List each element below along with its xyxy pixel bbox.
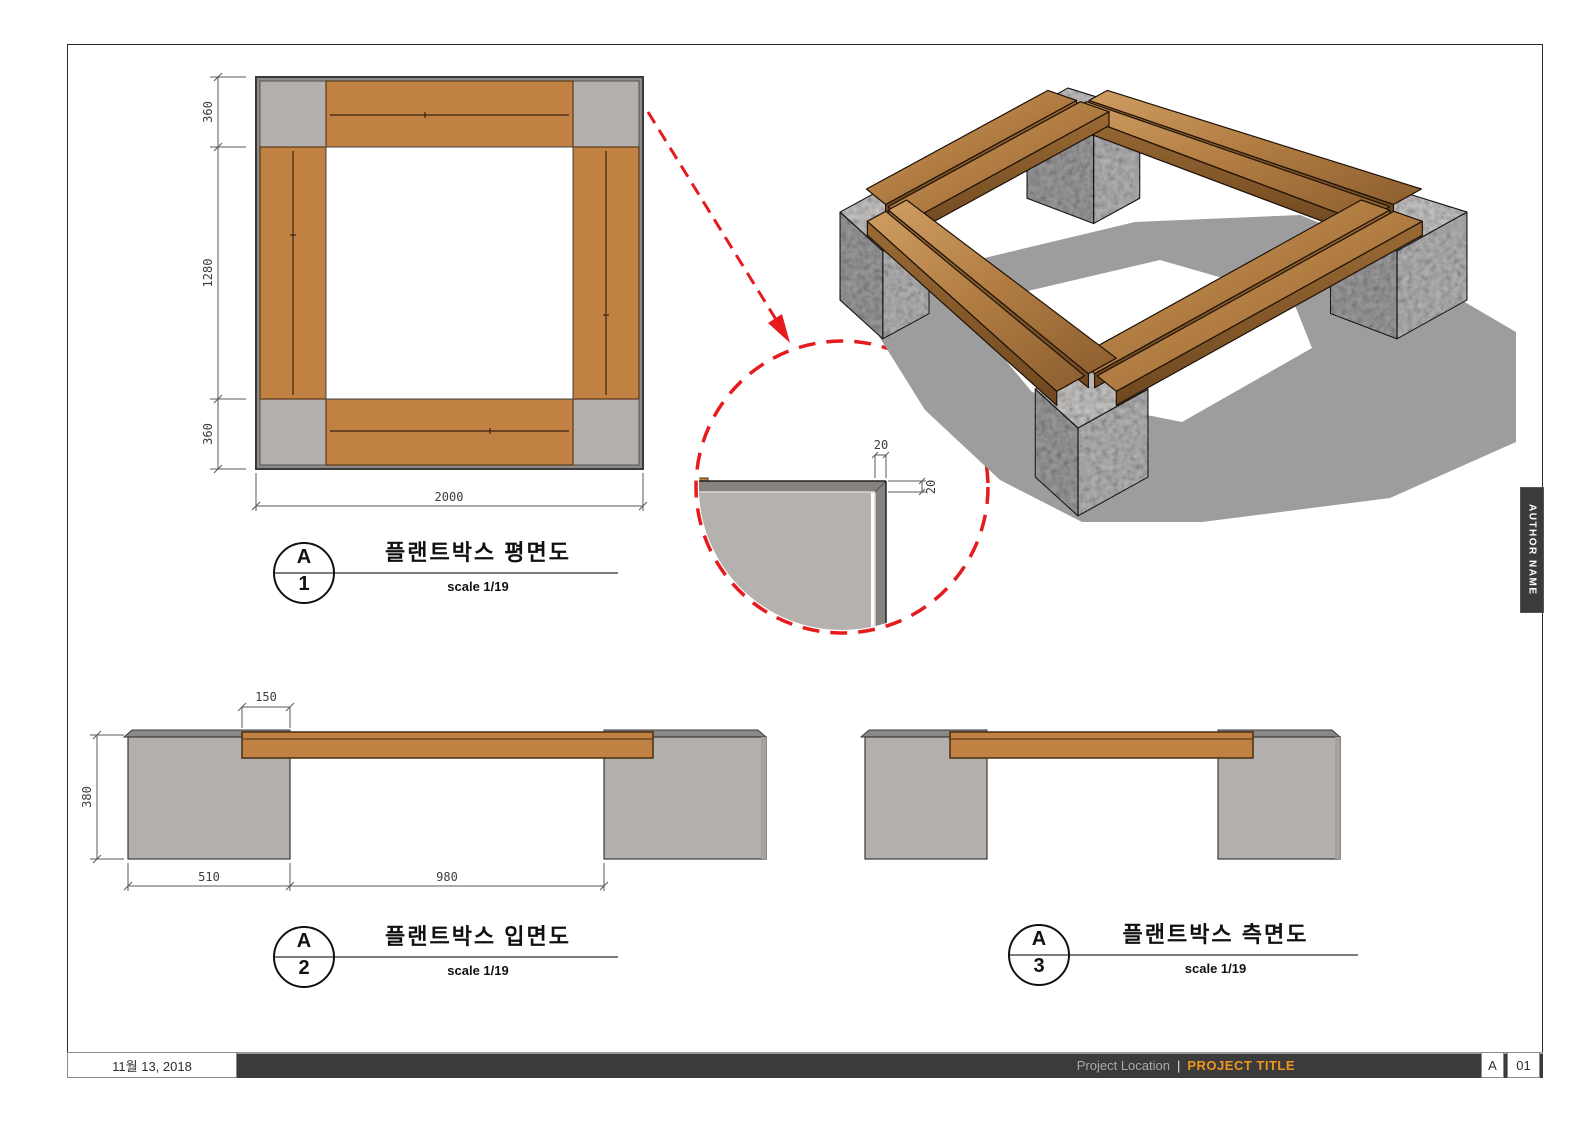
elevation-title-block: A 2 플랜트박스 입면도 scale 1/19 <box>273 917 618 1001</box>
elevation-dim-380: 380 <box>80 786 94 808</box>
elevation-wood-plank <box>242 732 653 758</box>
elevation-dim-510: 510 <box>198 870 220 884</box>
ref-number: 1 <box>275 573 333 599</box>
elevation-geometry <box>124 730 766 859</box>
side-view-drawing <box>850 670 1370 900</box>
elevation-right-block-bevel <box>761 737 766 859</box>
elevation-dim-980: 980 <box>436 870 458 884</box>
side-title-block: A 3 플랜트박스 측면도 scale 1/19 <box>1008 915 1358 999</box>
date-box: 11월 13, 2018 <box>67 1052 237 1078</box>
ref-number: 2 <box>275 957 333 983</box>
ref-number: 3 <box>1010 955 1068 981</box>
ref-letter: A <box>275 930 333 956</box>
ref-letter: A <box>275 546 333 572</box>
sheet-number-box: 01 <box>1507 1052 1540 1078</box>
isometric-render <box>830 70 1530 590</box>
side-wood-plank <box>950 732 1253 758</box>
elevation-scale: scale 1/19 <box>343 963 613 978</box>
author-name: AUTHOR NAME <box>1527 504 1538 596</box>
side-title: 플랜트박스 측면도 <box>1078 915 1353 954</box>
project-separator: | <box>1177 1058 1180 1073</box>
side-right-block-bevel <box>1335 737 1340 859</box>
plan-dim-360-bottom: 360 <box>201 423 215 445</box>
sheet-number: 01 <box>1516 1058 1530 1073</box>
plan-dim-1280: 1280 <box>201 259 215 288</box>
side-reference-bubble: A 3 <box>1008 924 1070 986</box>
project-title: PROJECT TITLE <box>1187 1058 1295 1073</box>
project-info: Project Location | PROJECT TITLE <box>1000 1052 1295 1078</box>
plan-reference-bubble: A 1 <box>273 542 335 604</box>
side-scale: scale 1/19 <box>1078 961 1353 976</box>
plan-dim-360-top: 360 <box>201 101 215 123</box>
ref-letter: A <box>1010 928 1068 954</box>
detail-leader-line <box>648 112 780 326</box>
elevation-view-drawing: 150 380 510 980 <box>80 670 800 900</box>
plan-box <box>256 77 643 469</box>
elevation-reference-bubble: A 2 <box>273 926 335 988</box>
elevation-dim-150: 150 <box>255 690 277 704</box>
plan-inner-opening <box>326 147 573 399</box>
revision-box: A <box>1481 1052 1504 1078</box>
plan-view-drawing: 360 1280 360 2000 <box>190 60 660 520</box>
plan-title: 플랜트박스 평면도 <box>343 533 613 572</box>
author-tab: AUTHOR NAME <box>1520 487 1544 613</box>
footer-bar <box>67 1052 1543 1078</box>
elevation-title: 플랜트박스 입면도 <box>343 917 613 956</box>
drawing-sheet: 360 1280 360 2000 20 <box>0 0 1587 1122</box>
detail-leader-arrowhead <box>768 314 790 343</box>
plan-dim-2000: 2000 <box>435 490 464 504</box>
revision-letter: A <box>1488 1058 1497 1073</box>
project-location: Project Location <box>1077 1058 1170 1073</box>
sheet-date: 11월 13, 2018 <box>112 1056 192 1075</box>
plan-scale: scale 1/19 <box>343 579 613 594</box>
side-geometry <box>861 730 1340 859</box>
plan-title-block: A 1 플랜트박스 평면도 scale 1/19 <box>273 533 618 617</box>
